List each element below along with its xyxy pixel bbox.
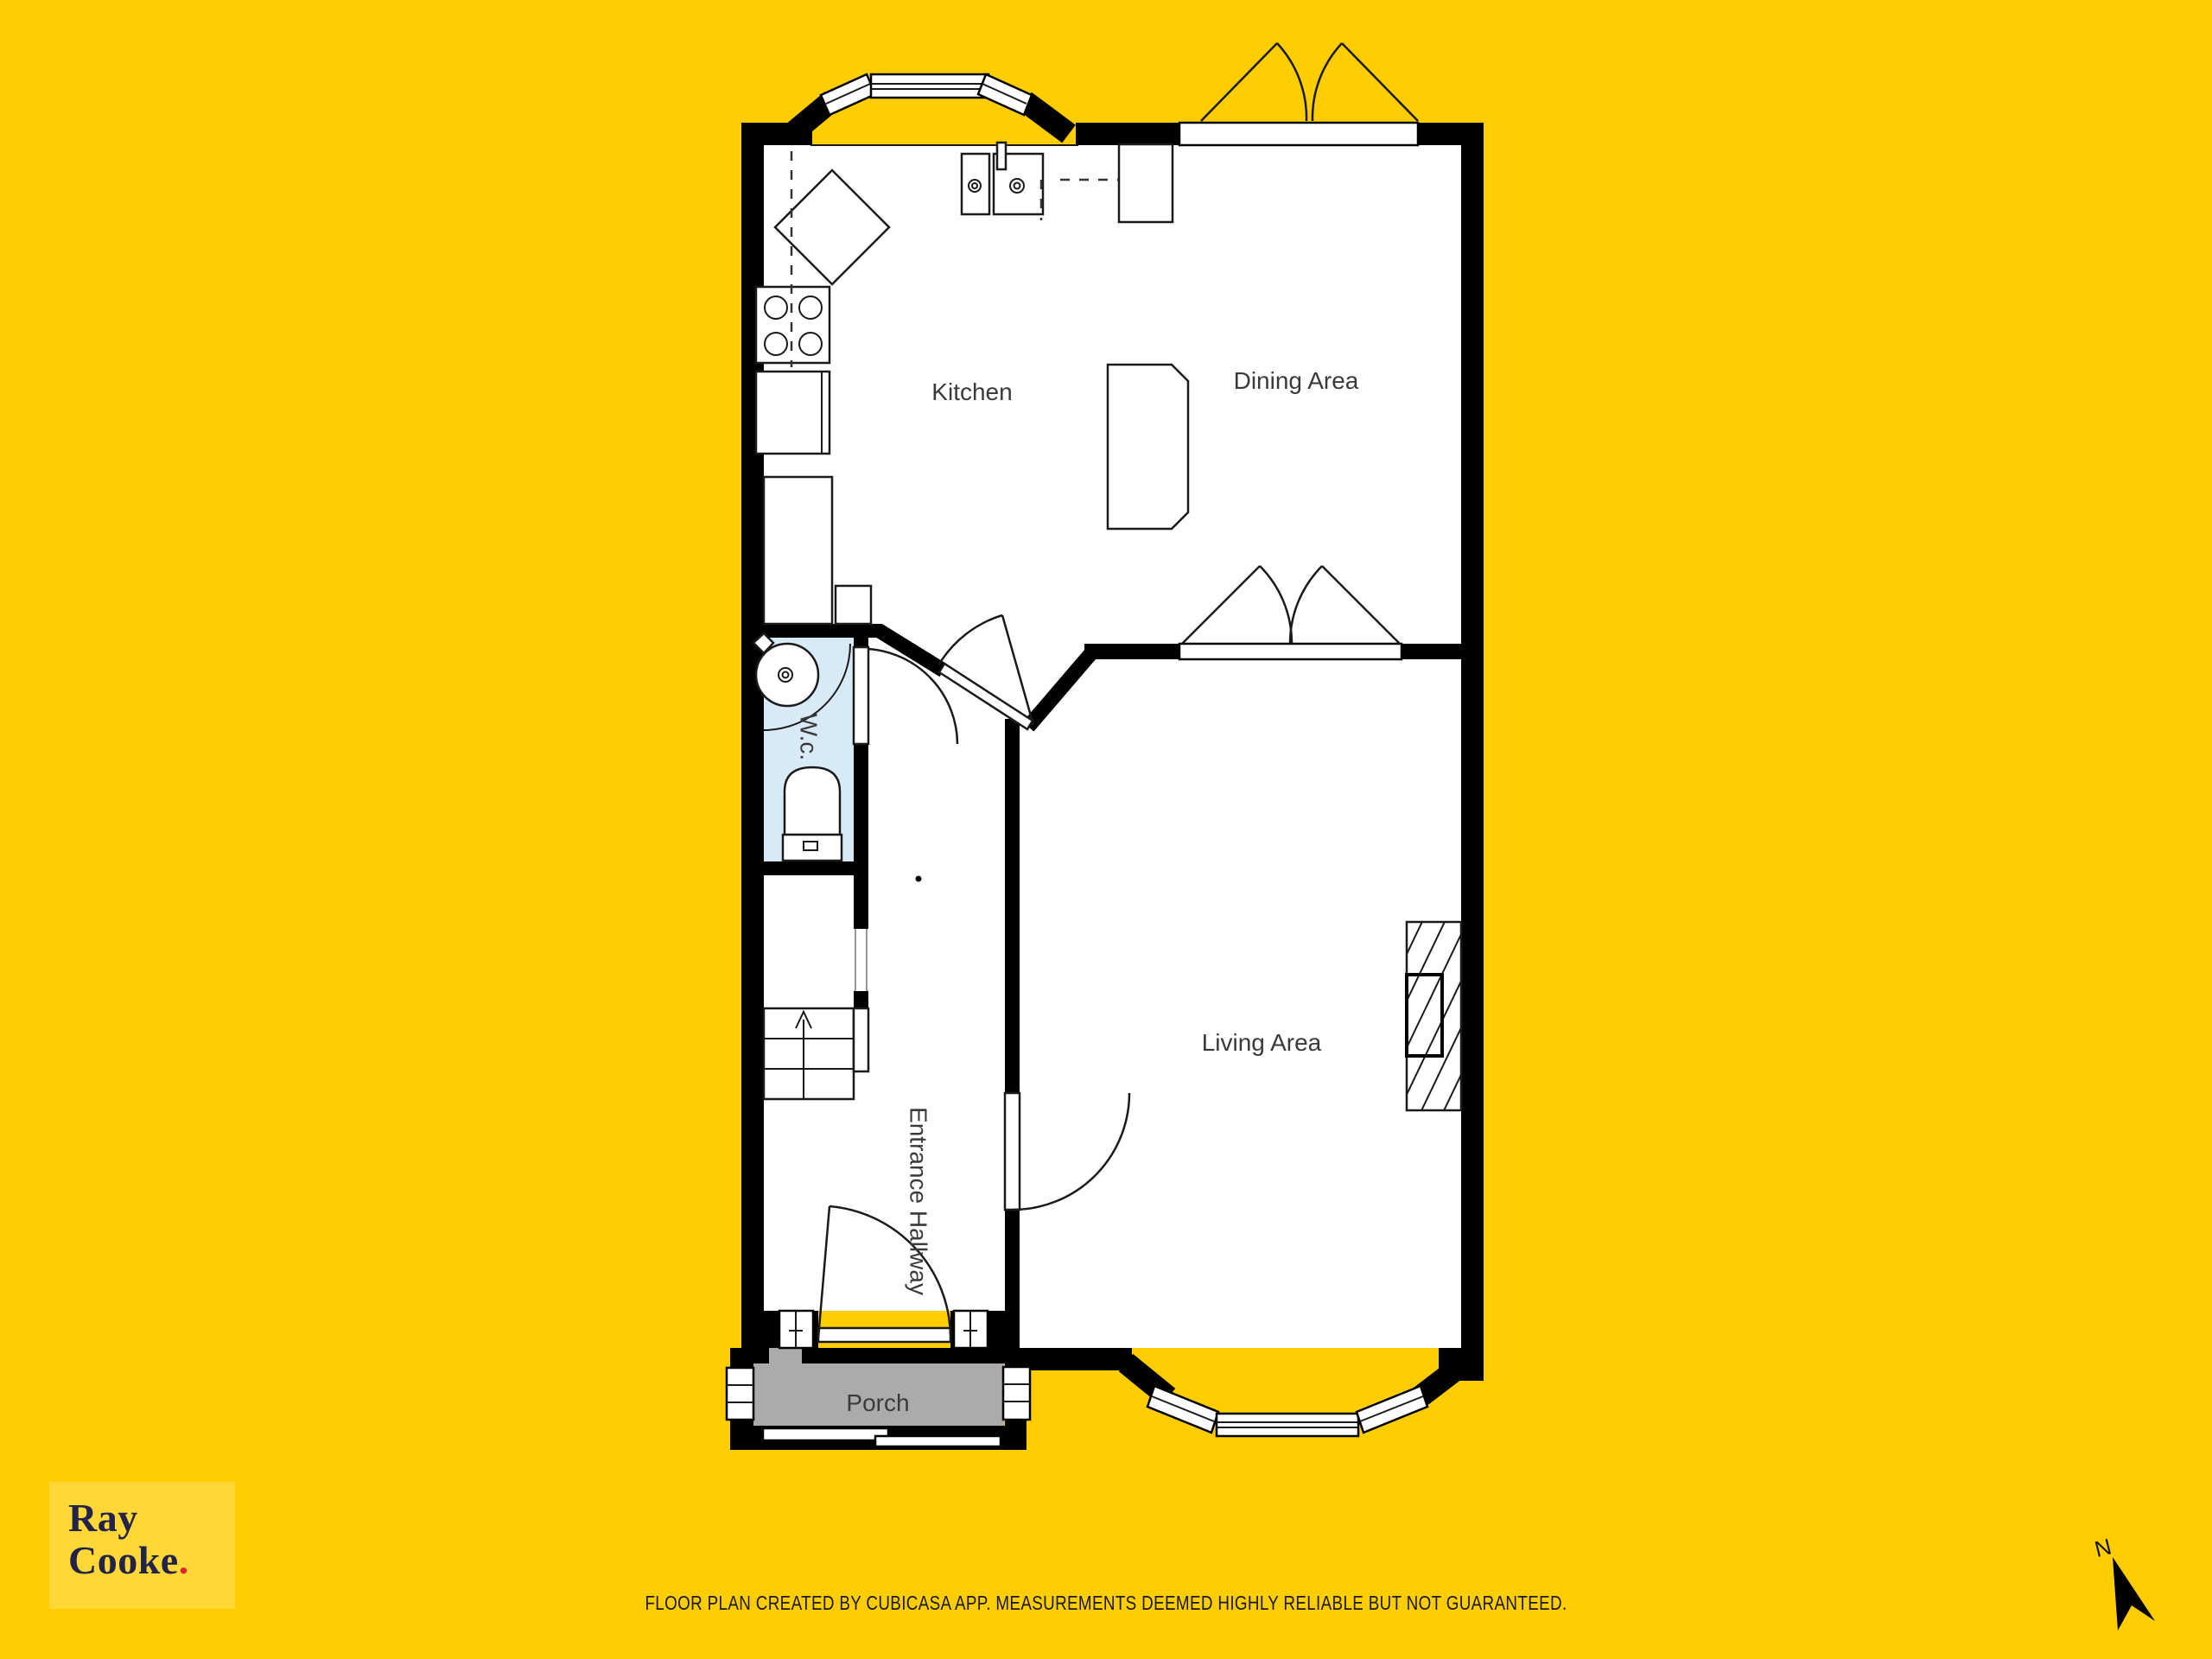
room-label-wc: W.c.: [796, 714, 823, 760]
porch-window-right: [1003, 1367, 1030, 1420]
logo-dot: .: [179, 1538, 189, 1582]
dot-artifact: [916, 876, 922, 882]
page-background: Kitchen Dining Area Living Area W.c. Ent…: [0, 0, 2212, 1659]
window-dining: [1179, 43, 1418, 145]
room-label-porch: Porch: [846, 1389, 909, 1416]
kitchen-sink: [962, 143, 1043, 214]
floor-plan: Kitchen Dining Area Living Area W.c. Ent…: [0, 0, 2212, 1659]
entrance-sidelight-right: [954, 1311, 988, 1348]
logo-line2: Cooke.: [68, 1539, 235, 1581]
porch-window-left: [727, 1368, 753, 1420]
room-label-kitchen: Kitchen: [931, 378, 1012, 405]
room-label-dining: Dining Area: [1234, 367, 1359, 394]
dining-table: [1108, 365, 1188, 529]
bay-window-kitchen: [821, 74, 1032, 115]
dining-cabinet: [1119, 144, 1173, 222]
kitchen-counter: [756, 372, 829, 454]
north-arrow-icon: [2113, 1557, 2155, 1630]
wc-toilet: [783, 767, 842, 861]
entrance-sidelight-left: [779, 1311, 813, 1348]
stairs: [764, 1008, 868, 1099]
stove: [756, 287, 829, 363]
porch-floor-notch: [769, 1348, 802, 1363]
agency-logo: Ray Cooke.: [49, 1482, 235, 1609]
north-label: N: [2092, 1533, 2113, 1562]
room-label-hallway: Entrance Hallway: [906, 1107, 932, 1295]
bay-window-living: [1147, 1386, 1427, 1436]
logo-line1: Ray: [68, 1497, 235, 1539]
footer-disclaimer: FLOOR PLAN CREATED BY CUBICASA APP. MEAS…: [199, 1592, 2012, 1615]
room-label-living: Living Area: [1202, 1029, 1322, 1056]
